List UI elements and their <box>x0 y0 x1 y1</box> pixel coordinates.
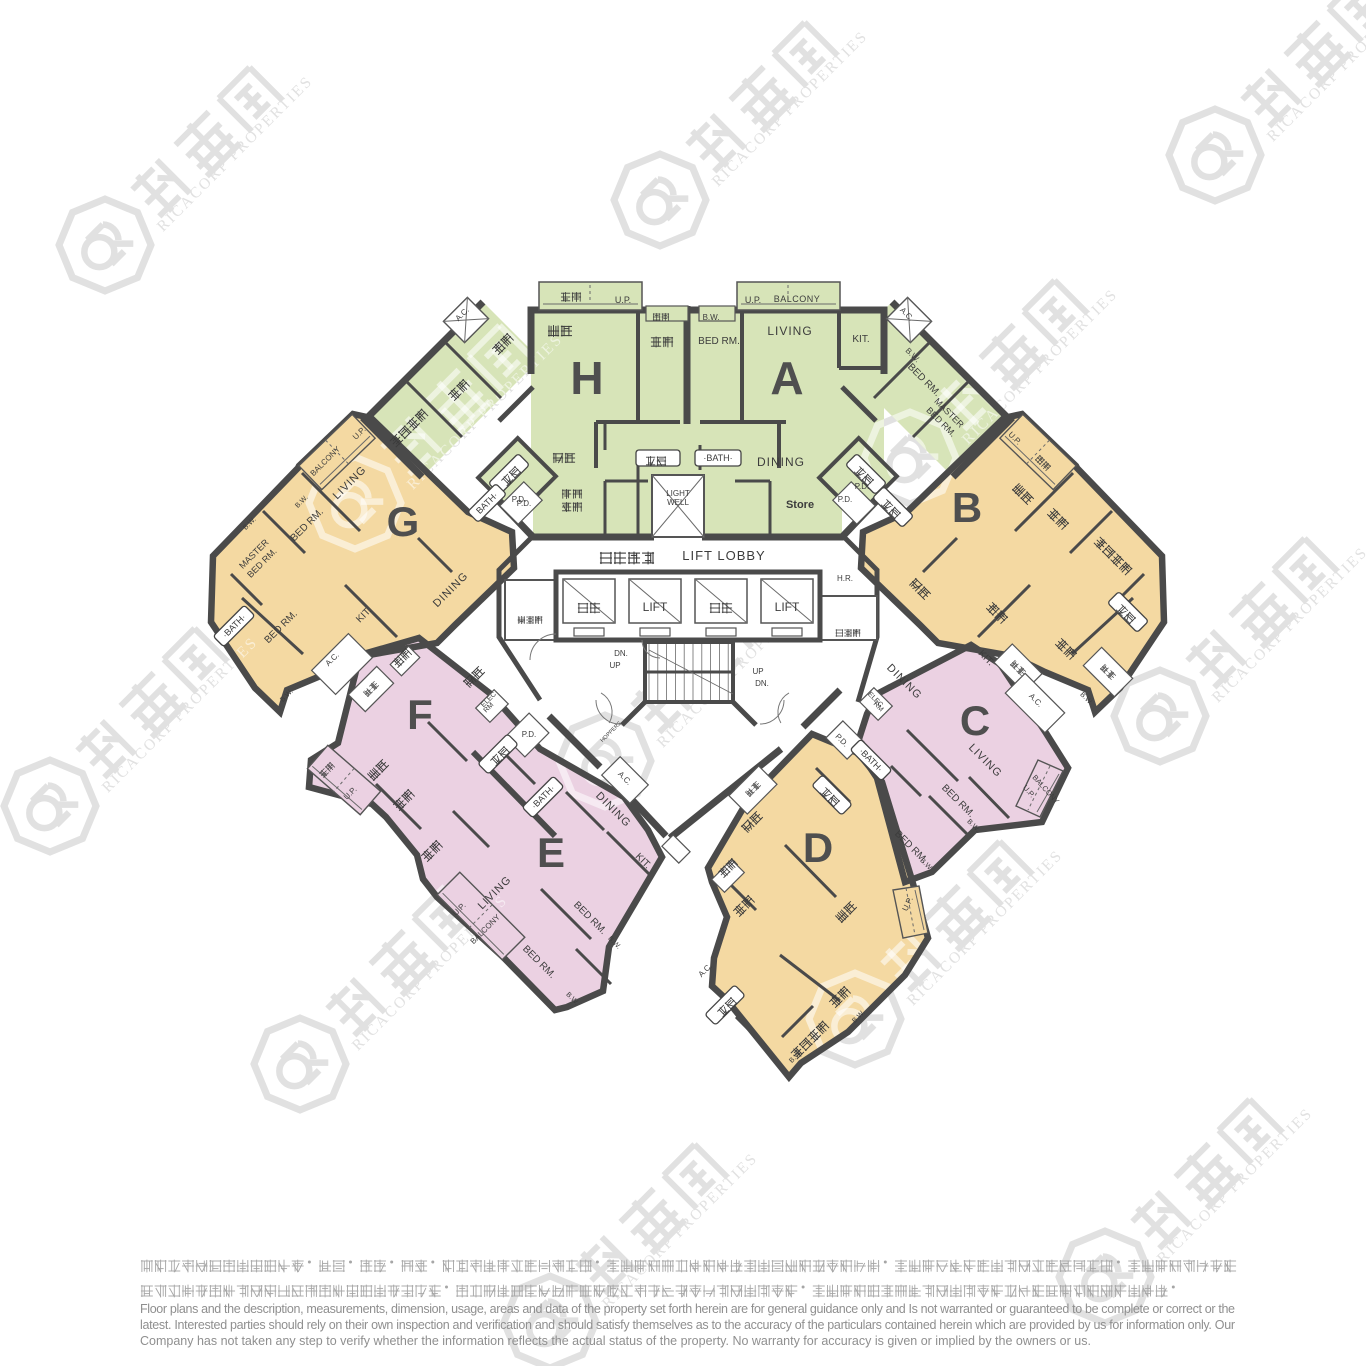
svg-text:D: D <box>803 824 833 871</box>
svg-text:WELL: WELL <box>667 498 689 507</box>
svg-text:P.D.: P.D. <box>517 499 532 508</box>
svg-text:U.P.: U.P. <box>745 295 761 305</box>
svg-text:latest. Interested parties sho: latest. Interested parties should rely o… <box>140 1318 1235 1332</box>
svg-text:P.D.: P.D. <box>855 482 870 491</box>
svg-text:C: C <box>960 697 990 744</box>
svg-text:B: B <box>952 484 982 531</box>
svg-text:P.D.: P.D. <box>522 730 537 739</box>
svg-text:Company has not taken any step: Company has not taken any step to verify… <box>140 1334 1091 1348</box>
svg-text:Store: Store <box>786 499 814 511</box>
svg-text:DINING: DINING <box>757 455 805 469</box>
svg-text:DN.: DN. <box>755 679 769 688</box>
svg-text:LIVING: LIVING <box>767 324 812 338</box>
svg-text:A: A <box>770 352 803 404</box>
svg-text:G: G <box>387 498 420 545</box>
svg-text:DN.: DN. <box>614 649 628 658</box>
svg-text:B.W.: B.W. <box>703 313 720 322</box>
svg-text:Floor plans and the descriptio: Floor plans and the description, measure… <box>140 1302 1235 1316</box>
svg-text:·BATH·: ·BATH· <box>703 453 732 463</box>
svg-text:H: H <box>570 352 603 404</box>
svg-text:LIFT: LIFT <box>643 600 668 614</box>
svg-text:U.P.: U.P. <box>615 295 631 305</box>
svg-text:BALCONY: BALCONY <box>774 294 821 304</box>
svg-text:LIGHT: LIGHT <box>666 489 690 498</box>
svg-text:KIT.: KIT. <box>852 334 869 345</box>
svg-text:F: F <box>407 691 433 738</box>
svg-text:UP: UP <box>752 667 763 676</box>
svg-text:E: E <box>537 829 565 876</box>
svg-text:LIFT LOBBY: LIFT LOBBY <box>682 548 765 563</box>
svg-text:UP: UP <box>609 661 620 670</box>
svg-text:LIFT: LIFT <box>775 600 800 614</box>
svg-text:P.D.: P.D. <box>838 495 853 504</box>
svg-text:BED RM.: BED RM. <box>698 336 740 347</box>
svg-text:H.R.: H.R. <box>837 574 853 583</box>
